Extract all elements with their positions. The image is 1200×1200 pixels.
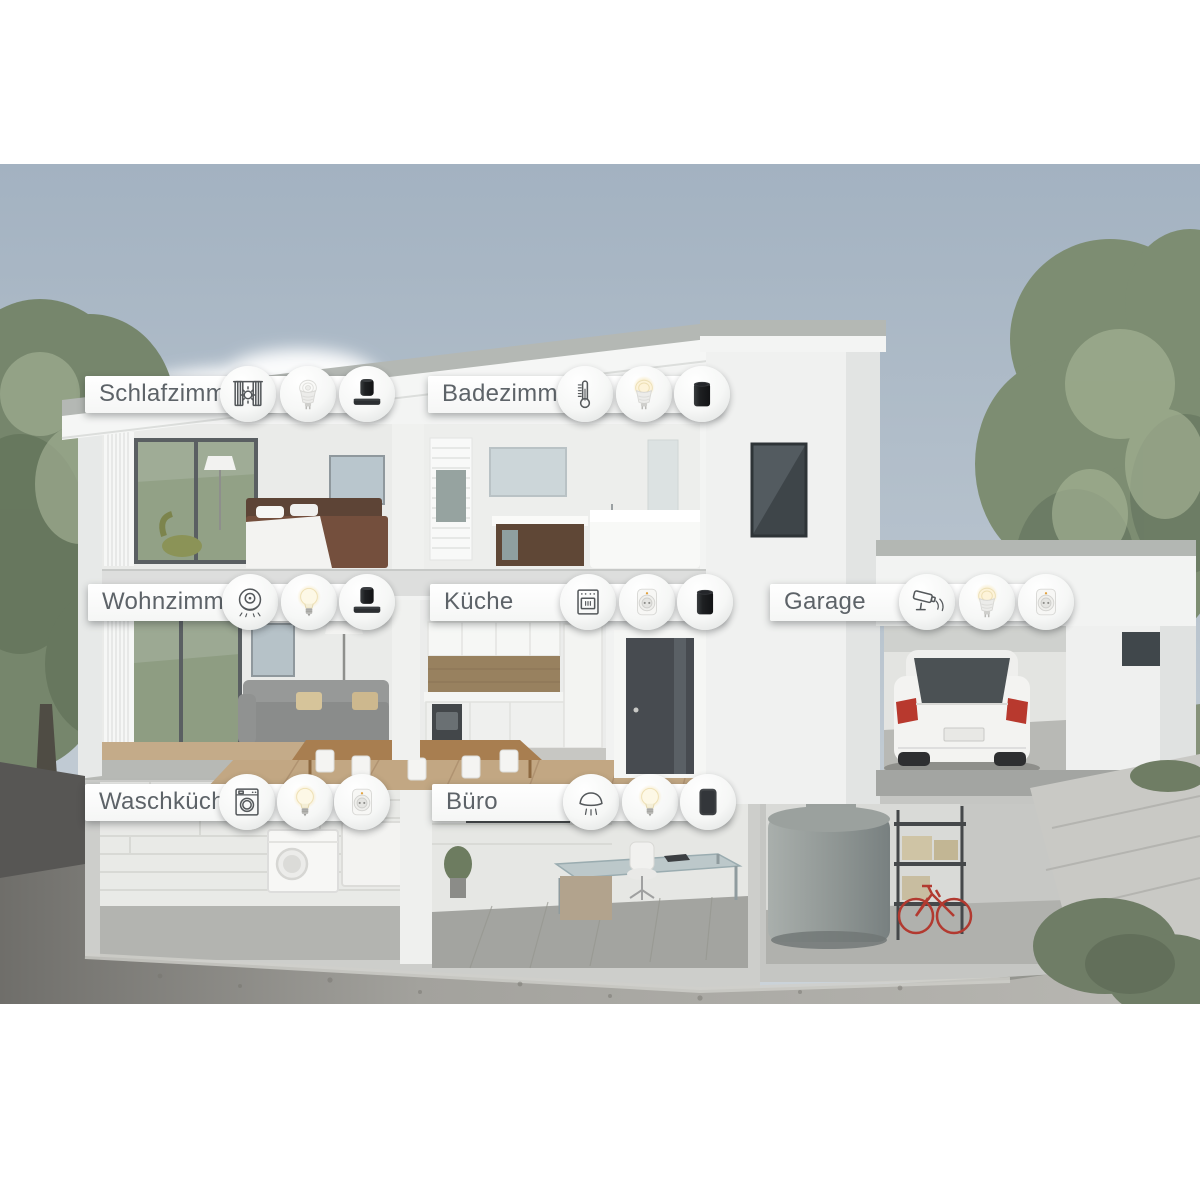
product-image-canvas: Schlafzimmer Badezimmer Wohnzimm: [0, 0, 1200, 1200]
robot-vacuum-icon: [222, 574, 278, 630]
room-label-wohnzimmer: Wohnzimmer: [88, 574, 395, 630]
gu10-bulb-lit-device: [616, 366, 672, 422]
smart-plug-device: [334, 774, 390, 830]
smart-plug-device: [1018, 574, 1074, 630]
oven-icon: [560, 574, 616, 630]
security-camera-icon: [899, 574, 955, 630]
room-label-b-ro: Büro: [432, 774, 736, 830]
speaker-cylinder-device: [677, 574, 733, 630]
room-label-k-che: Küche: [430, 574, 733, 630]
smoke-detector-icon: [563, 774, 619, 830]
room-label-garage: Garage: [770, 574, 1074, 630]
room-name: Büro: [432, 788, 498, 816]
gu10-bulb-device: [280, 366, 336, 422]
e27-bulb-lit-device: [622, 774, 678, 830]
e27-bulb-lit-device: [281, 574, 337, 630]
room-labels-layer: Schlafzimmer Badezimmer Wohnzimm: [0, 164, 1200, 1004]
speaker-cylinder-device: [674, 366, 730, 422]
house-cutaway-photo: Schlafzimmer Badezimmer Wohnzimm: [0, 164, 1200, 1004]
gu10-bulb-lit-device: [959, 574, 1015, 630]
washing-machine-icon: [219, 774, 275, 830]
room-label-schlafzimmer: Schlafzimmer: [85, 366, 395, 422]
room-name: Waschküche: [85, 788, 239, 816]
room-label-waschk-che: Waschküche: [85, 774, 390, 830]
speaker-soundbar-device: [339, 366, 395, 422]
thermometer-icon: [557, 366, 613, 422]
room-name: Küche: [430, 588, 514, 616]
speaker-soundbar-device: [339, 574, 395, 630]
e27-bulb-lit-device: [277, 774, 333, 830]
room-name: Garage: [770, 588, 866, 616]
speaker-rect-device: [680, 774, 736, 830]
curtain-blind-icon: [220, 366, 276, 422]
room-label-badezimmer: Badezimmer: [428, 366, 730, 422]
smart-plug-device: [619, 574, 675, 630]
